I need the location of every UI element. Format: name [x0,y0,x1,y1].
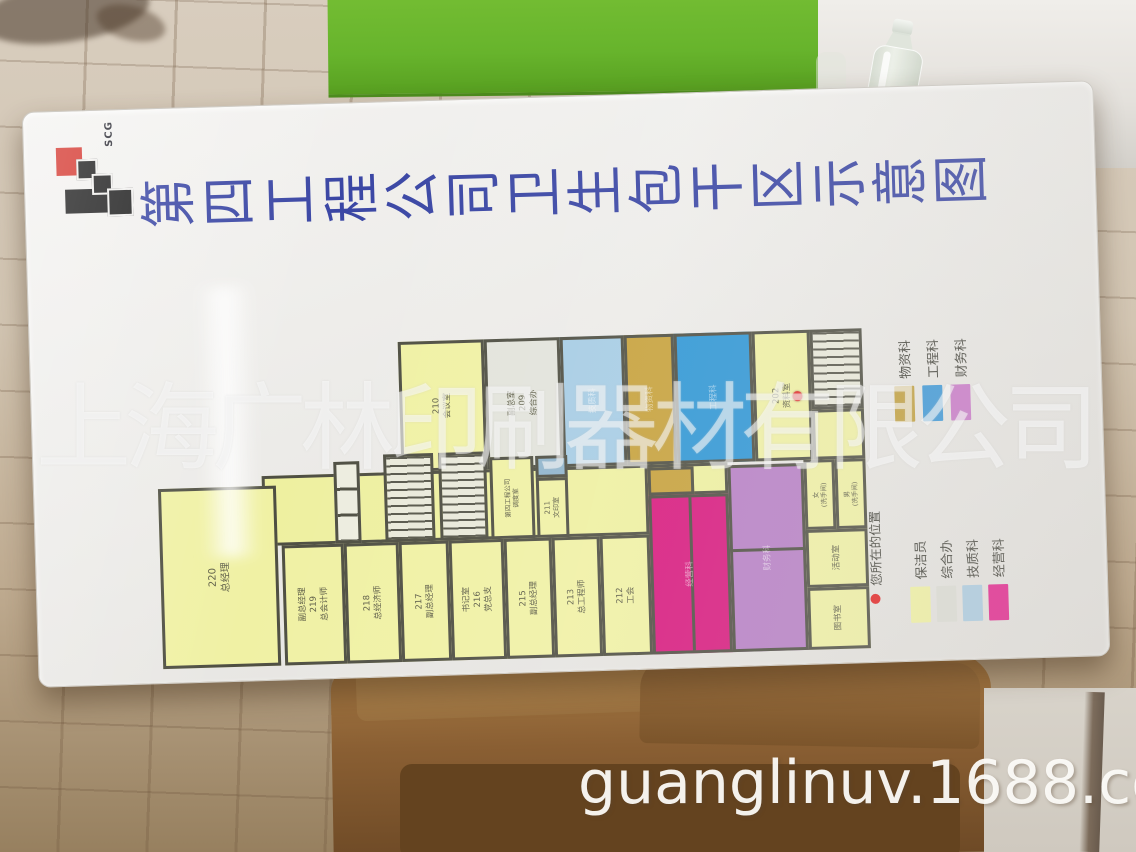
legend-color-swatch [988,584,1009,621]
legend-item-label: 保洁员 [909,540,929,580]
title-char-glyph: 工 [263,173,321,225]
cardboard-pile [639,657,980,749]
room-215: 215 副总经理 [504,537,556,658]
room-label: 213 总工程师 [565,541,590,652]
title-char-glyph: 示 [811,157,869,209]
title-char: 程 [320,126,385,268]
room-label: 书记室 216 党总支 [460,544,496,655]
legend-color-swatch [962,585,983,622]
room-finance-dept: 财务科 [727,463,809,652]
room-213: 213 总工程师 [552,536,604,657]
legend-item-label: 综合办 [935,540,955,580]
room-library: 图书室 [807,586,871,650]
room-label: 副总经理 219 总会计师 [296,549,332,660]
photo-scene: SCG 第四工程公司卫生包干区示意图 210 会议室副总室 209 综合办技质科… [0,0,1136,852]
watermark-site-url: guanglinuv.1688.com [578,748,1136,818]
sign-title: 第四工程公司卫生包干区示意图 [137,108,995,273]
room-217: 217 副总经理 [399,541,453,662]
legend-color-swatch [910,586,931,623]
location-dot-icon [870,594,880,604]
title-char: 意 [869,110,934,252]
room-business-dept: 经营科 [648,493,733,654]
title-char-glyph: 区 [750,159,808,211]
legend-color-swatch [936,586,957,623]
green-wall-panel [327,0,824,98]
title-char: 包 [625,117,690,259]
location-legend-label: 您所在的位置 [863,511,884,587]
legend-item-label: 经营科 [987,538,1007,578]
title-char-glyph: 包 [629,162,687,214]
room-212: 212 工会 [600,535,654,656]
room-label: 财务科 [761,502,775,612]
title-char: 卫 [503,121,568,263]
room-218: 218 总经济师 [344,542,403,664]
room-label: 215 副总经理 [517,543,542,654]
title-char: 工 [259,128,324,270]
room-216: 书记室 216 党总支 [449,539,508,661]
title-char: 四 [198,130,263,272]
room-label: 218 总经济师 [360,548,385,659]
title-char-glyph: 四 [202,175,260,227]
title-char: 司 [442,123,507,265]
title-char: 生 [564,119,629,261]
title-char-glyph: 生 [568,164,626,216]
title-char-glyph: 司 [446,168,504,220]
title-char: 区 [747,114,812,256]
room-219: 副总经理 219 总会计师 [282,544,348,666]
logo-step [107,188,134,217]
title-char: 公 [381,125,446,267]
legend-item-label: 技质科 [961,539,981,579]
title-char-glyph: 卫 [507,166,565,218]
title-char-glyph: 程 [324,171,382,223]
title-char-glyph: 干 [689,160,747,212]
title-char-glyph: 意 [872,155,930,207]
title-char: 第 [137,132,202,274]
logo-text: SCG [101,116,118,150]
title-char: 图 [930,108,995,250]
title-char: 干 [686,116,751,258]
title-char-glyph: 图 [933,153,991,205]
title-char-glyph: 公 [385,170,443,222]
room-label: 212 工会 [614,540,639,651]
title-char-glyph: 第 [141,177,199,229]
title-char: 示 [808,112,873,254]
watermark-company-name: 上海广林印刷器材有限公司 [36,352,1136,489]
room-label: 217 副总经理 [413,546,438,657]
room-label: 经营科 [684,519,698,629]
